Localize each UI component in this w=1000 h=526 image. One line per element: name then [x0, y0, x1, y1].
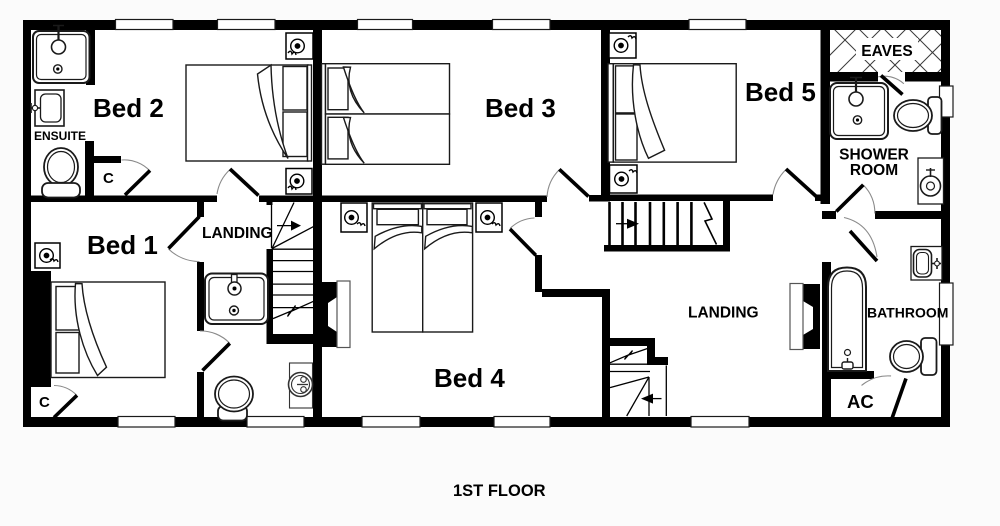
svg-text:Bed 2: Bed 2 — [93, 93, 164, 123]
svg-text:Bed 3: Bed 3 — [485, 93, 556, 123]
svg-text:Bed 1: Bed 1 — [87, 230, 158, 260]
svg-text:Bed 4: Bed 4 — [434, 363, 505, 393]
svg-text:LANDING: LANDING — [688, 305, 759, 322]
svg-text:SHOWER: SHOWER — [839, 147, 909, 164]
svg-text:C: C — [39, 394, 50, 411]
svg-text:EAVES: EAVES — [861, 43, 912, 60]
svg-text:LANDING: LANDING — [202, 225, 273, 242]
svg-text:C: C — [103, 170, 114, 187]
svg-text:BATHROOM: BATHROOM — [867, 305, 948, 321]
svg-text:1ST FLOOR: 1ST FLOOR — [453, 482, 546, 500]
svg-text:AC: AC — [847, 391, 874, 412]
svg-text:Bed 5: Bed 5 — [745, 77, 816, 107]
svg-text:ROOM: ROOM — [850, 162, 898, 179]
svg-text:ENSUITE: ENSUITE — [34, 129, 86, 143]
